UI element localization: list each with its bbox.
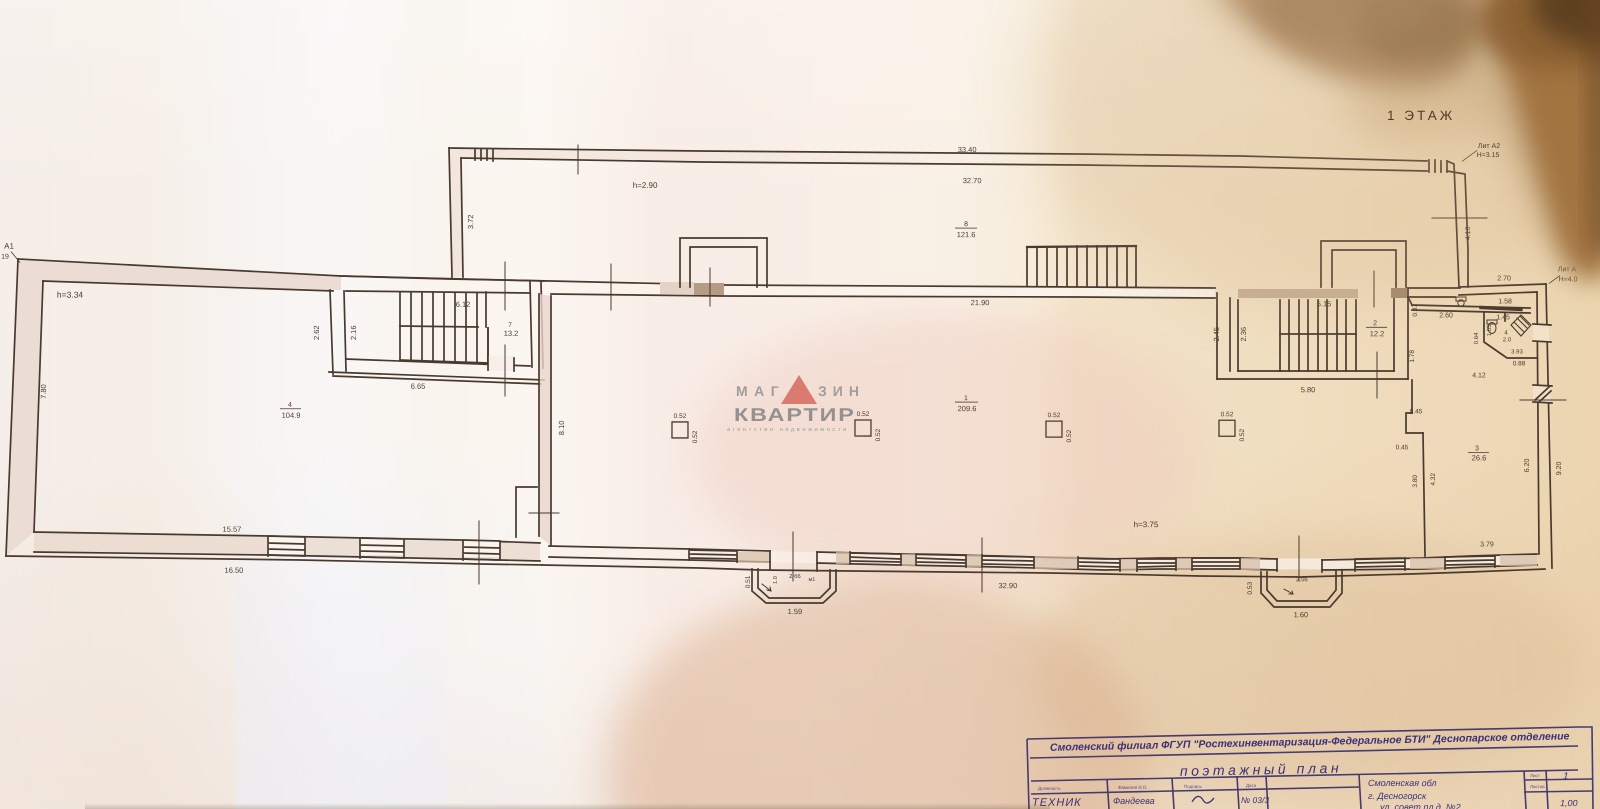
svg-text:0.45: 0.45 <box>1396 444 1409 451</box>
svg-text:1: 1 <box>964 395 968 402</box>
svg-text:Смоленская обл: Смоленская обл <box>1368 778 1437 788</box>
svg-text:м1: м1 <box>808 577 815 583</box>
svg-text:3: 3 <box>1475 445 1479 452</box>
svg-text:1,00: 1,00 <box>1560 798 1578 808</box>
svg-text:1.05: 1.05 <box>1487 324 1493 336</box>
svg-text:2.0: 2.0 <box>1503 337 1512 343</box>
svg-text:33.40: 33.40 <box>958 145 977 154</box>
svg-text:Фамилия И.О.: Фамилия И.О. <box>1118 785 1148 790</box>
svg-text:Подпись: Подпись <box>1184 784 1202 789</box>
svg-text:1.78: 1.78 <box>1409 350 1416 363</box>
svg-text:2.56: 2.56 <box>1296 577 1308 583</box>
svg-text:Лист: Лист <box>1530 773 1540 778</box>
svg-text:1 ЭТАЖ: 1 ЭТАЖ <box>1387 108 1455 123</box>
svg-text:0.52: 0.52 <box>857 411 870 418</box>
svg-text:2.70: 2.70 <box>1497 275 1511 282</box>
svg-text:6.12: 6.12 <box>456 300 471 309</box>
svg-text:2.62: 2.62 <box>312 325 321 340</box>
svg-text:5.80: 5.80 <box>1301 385 1316 394</box>
svg-text:1.45: 1.45 <box>1496 314 1510 321</box>
svg-text:9.20: 9.20 <box>1556 461 1563 475</box>
svg-text:0.51: 0.51 <box>745 575 752 588</box>
svg-text:2.60: 2.60 <box>1439 312 1453 319</box>
svg-text:2.45: 2.45 <box>1212 327 1221 342</box>
svg-text:0.64: 0.64 <box>1474 332 1480 344</box>
svg-text:h=3.75: h=3.75 <box>1134 520 1159 529</box>
svg-text:ЗИН: ЗИН <box>818 383 865 399</box>
svg-text:№ 03/3: № 03/3 <box>1241 795 1269 805</box>
svg-text:г. Десногорск: г. Десногорск <box>1368 791 1427 801</box>
svg-text:4: 4 <box>288 402 292 409</box>
svg-text:Н=3.15: Н=3.15 <box>1477 152 1500 159</box>
svg-text:2.36: 2.36 <box>1239 327 1248 342</box>
svg-text:13.2: 13.2 <box>504 329 519 338</box>
svg-text:4.12: 4.12 <box>1472 372 1486 379</box>
svg-text:поэтажный план: поэтажный план <box>1180 760 1343 779</box>
svg-text:3.72: 3.72 <box>466 215 475 230</box>
svg-text:h=3.34: h=3.34 <box>57 290 84 300</box>
svg-text:2: 2 <box>1373 320 1377 327</box>
svg-text:А1: А1 <box>4 242 14 251</box>
svg-text:104.9: 104.9 <box>282 411 301 420</box>
svg-text:2.16: 2.16 <box>349 325 358 340</box>
svg-text:0.52: 0.52 <box>1221 411 1234 418</box>
svg-text:1.0: 1.0 <box>773 576 779 584</box>
svg-text:7: 7 <box>508 322 512 329</box>
svg-text:3.80: 3.80 <box>1412 475 1419 488</box>
svg-text:0.88: 0.88 <box>1513 360 1526 367</box>
svg-text:ул. совет пл.д. №2: ул. совет пл.д. №2 <box>1379 802 1461 809</box>
svg-text:0.52: 0.52 <box>692 430 699 443</box>
svg-text:Н=4.0: Н=4.0 <box>1559 276 1578 283</box>
svg-text:h=2.90: h=2.90 <box>633 181 658 190</box>
svg-text:12.2: 12.2 <box>1370 329 1385 338</box>
svg-text:6.20: 6.20 <box>1524 458 1531 472</box>
svg-text:0.52: 0.52 <box>674 413 687 420</box>
svg-text:Лит А2: Лит А2 <box>1478 143 1500 150</box>
svg-text:1.58: 1.58 <box>1498 298 1512 305</box>
svg-text:4.32: 4.32 <box>1430 473 1437 486</box>
svg-text:1: 1 <box>1563 771 1569 782</box>
svg-text:1.59: 1.59 <box>788 607 803 616</box>
svg-text:16.50: 16.50 <box>225 566 244 575</box>
svg-text:3.93: 3.93 <box>1511 349 1523 355</box>
svg-text:Фандеева: Фандеева <box>1113 796 1155 806</box>
svg-text:15.57: 15.57 <box>223 525 242 534</box>
svg-text:21.90: 21.90 <box>971 298 990 307</box>
svg-text:7.80: 7.80 <box>39 384 48 399</box>
svg-text:0.52: 0.52 <box>1048 412 1061 419</box>
svg-text:32.70: 32.70 <box>963 176 982 185</box>
svg-text:МАГ: МАГ <box>736 383 785 399</box>
svg-text:6.65: 6.65 <box>411 382 426 391</box>
svg-text:Дата: Дата <box>1246 783 1256 788</box>
svg-text:2.66: 2.66 <box>789 574 801 580</box>
svg-text:Листов: Листов <box>1530 784 1545 789</box>
svg-text:0.52: 0.52 <box>875 428 882 441</box>
svg-text:КВАРТИР: КВАРТИР <box>734 405 856 425</box>
svg-text:0.52: 0.52 <box>1239 429 1246 442</box>
svg-text:121.6: 121.6 <box>957 230 976 239</box>
svg-text:19: 19 <box>1 254 9 261</box>
svg-text:Должность: Должность <box>1038 786 1061 791</box>
svg-text:1.60: 1.60 <box>1294 610 1309 619</box>
svg-text:209.6: 209.6 <box>958 404 977 413</box>
svg-text:0.87: 0.87 <box>1412 304 1419 317</box>
svg-text:0.45: 0.45 <box>1410 408 1423 415</box>
svg-text:32.90: 32.90 <box>999 581 1018 590</box>
svg-text:0.53: 0.53 <box>1247 582 1254 595</box>
svg-text:0.52: 0.52 <box>1066 429 1073 442</box>
svg-text:3.79: 3.79 <box>1480 541 1494 548</box>
svg-text:агентство недвижимости: агентство недвижимости <box>727 427 849 433</box>
svg-text:8: 8 <box>964 221 968 228</box>
svg-text:8.10: 8.10 <box>557 421 566 436</box>
svg-text:26.6: 26.6 <box>1472 453 1487 462</box>
